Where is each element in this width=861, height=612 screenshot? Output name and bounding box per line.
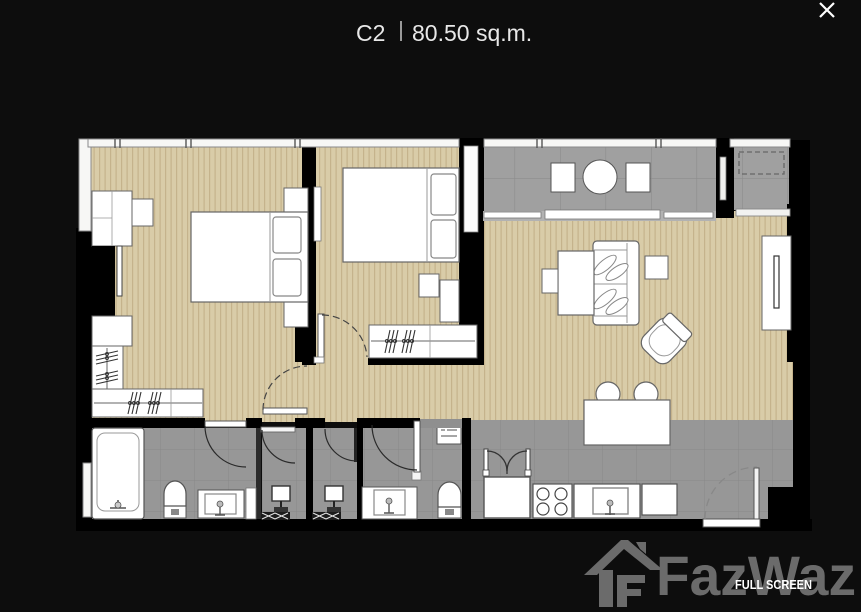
svg-text:FazWaz: FazWaz xyxy=(656,544,856,607)
svg-text:C2: C2 xyxy=(356,20,385,46)
svg-text:80.50 sq.m.: 80.50 sq.m. xyxy=(412,20,532,46)
svg-text:FULL SCREEN: FULL SCREEN xyxy=(735,577,812,592)
